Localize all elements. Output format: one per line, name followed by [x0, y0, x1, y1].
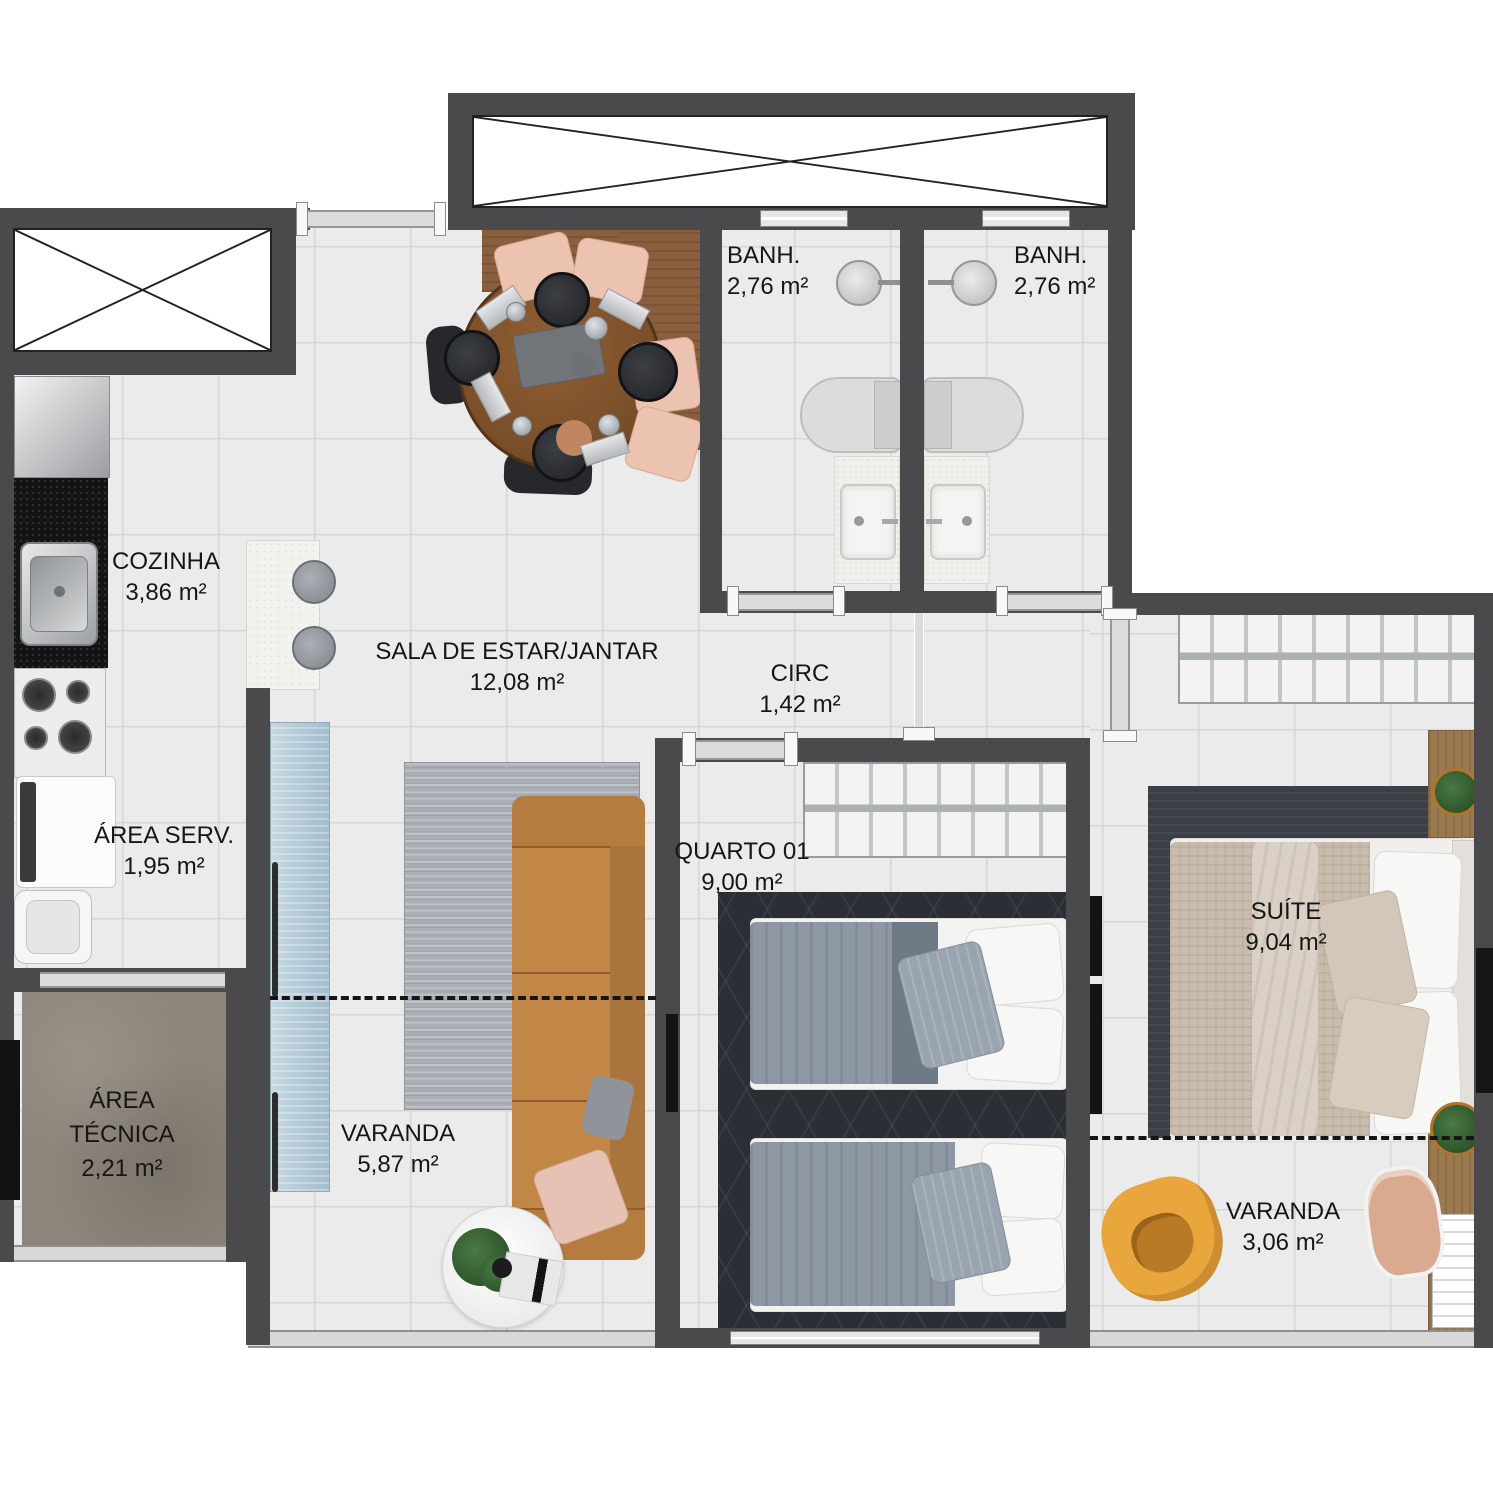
balcony-living-boundary — [270, 996, 656, 1000]
service-technical-opening — [40, 972, 225, 988]
stove-burner-1 — [22, 678, 56, 712]
suite-door — [1110, 617, 1130, 733]
outside-bottom-left — [0, 1262, 248, 1491]
shower-head-1 — [836, 260, 882, 306]
bedroom-door-jamb-right — [784, 732, 798, 766]
bedroom-window-bottom — [730, 1331, 1040, 1345]
room-name-line2: TÉCNICA — [69, 1118, 174, 1152]
balcony-suite-boundary — [1090, 1136, 1474, 1140]
label-suite: SUÍTE 9,04 m² — [1245, 896, 1326, 958]
glass-4 — [512, 416, 532, 436]
suite-wardrobe — [1178, 612, 1478, 704]
label-kitchen: COZINHA 3,86 m² — [112, 546, 220, 608]
sideboard-handle-1 — [272, 862, 278, 997]
bath1-door-jamb-right — [833, 586, 845, 616]
room-name: SUÍTE — [1245, 896, 1326, 927]
wall-top-left — [0, 208, 310, 230]
label-living-dining: SALA DE ESTAR/JANTAR 12,08 m² — [375, 636, 658, 698]
room-name: BANH. — [1014, 240, 1095, 271]
wall-technical-right — [226, 992, 248, 1262]
faucet-2-spout — [926, 519, 942, 524]
room-name-line1: ÁREA — [69, 1084, 174, 1118]
bedroom-door-jamb-left — [682, 732, 696, 766]
sofa-seat-1 — [512, 846, 610, 974]
suite-nightstand-plant — [1432, 768, 1480, 816]
room-name: BANH. — [727, 240, 808, 271]
circ-wall-jamb — [903, 727, 935, 741]
faucet-1 — [854, 516, 864, 526]
balcony-living-rail — [248, 1330, 660, 1348]
stove-burner-3 — [24, 726, 48, 750]
label-balcony-living: VARANDA 5,87 m² — [341, 1118, 455, 1180]
stove-burner-4 — [58, 720, 92, 754]
shower-arm-2 — [928, 280, 954, 285]
glass-3 — [598, 414, 620, 436]
room-area: 5,87 m² — [341, 1149, 455, 1180]
balcony-suite-rail — [1090, 1330, 1478, 1348]
suite-door-jamb-bottom — [1103, 730, 1137, 742]
wall-shaft-top-top — [448, 93, 1135, 115]
room-area: 9,04 m² — [1245, 927, 1326, 958]
label-bathroom-2: BANH. 2,76 m² — [1014, 240, 1095, 302]
toilet-1-tank — [874, 381, 902, 449]
sofa-armrest-top — [512, 796, 645, 846]
suite-window-right — [1476, 948, 1493, 1093]
room-area: 1,42 m² — [759, 689, 840, 720]
room-name: CIRC — [759, 658, 840, 689]
stove-burner-2 — [66, 680, 90, 704]
floor-plan: BANH. 2,76 m² BANH. 2,76 m² COZINHA 3,86… — [0, 0, 1493, 1491]
entry-door-jamb-right — [434, 202, 446, 236]
room-name: SALA DE ESTAR/JANTAR — [375, 636, 658, 667]
bathroom-1-door — [737, 593, 835, 611]
glass-1 — [584, 316, 608, 340]
room-name: VARANDA — [1226, 1196, 1340, 1227]
room-name: ÁREA SERV. — [94, 820, 234, 851]
label-bathroom-1: BANH. 2,76 m² — [727, 240, 808, 302]
room-area: 9,00 m² — [674, 867, 809, 898]
room-area: 2,76 m² — [1014, 271, 1095, 302]
wall-bath-left — [700, 228, 722, 613]
entry-door — [306, 210, 436, 228]
faucet-1-spout — [882, 519, 898, 524]
plate-top — [534, 272, 590, 328]
label-technical-area: ÁREA TÉCNICA 2,21 m² — [69, 1084, 174, 1186]
bathroom-2-window — [982, 210, 1070, 227]
bedroom-wardrobe — [803, 762, 1068, 858]
room-area: 2,76 m² — [727, 271, 808, 302]
island-stool-1 — [292, 560, 336, 604]
cup — [570, 352, 594, 376]
technical-threshold — [10, 1245, 248, 1262]
entry-door-jamb-left — [296, 202, 308, 236]
island-stool-2 — [292, 626, 336, 670]
wall-bedroom-right — [1066, 738, 1090, 1345]
bed1-duvet — [750, 922, 908, 1084]
room-area: 12,08 m² — [375, 667, 658, 698]
suite-door-jamb-top — [1103, 608, 1137, 620]
outside-top-right — [1132, 228, 1493, 593]
plate-right — [618, 342, 678, 402]
suite-bed-throw — [1252, 842, 1318, 1136]
refrigerator — [14, 376, 110, 478]
label-circulation: CIRC 1,42 m² — [759, 658, 840, 720]
suite-curtain-top — [1090, 896, 1102, 976]
plant-pot — [492, 1258, 512, 1278]
shower-head-2 — [951, 260, 997, 306]
wall-bath-middle — [900, 228, 924, 613]
wall-suite-top — [1132, 593, 1478, 615]
suite-curtain-bottom — [1090, 984, 1102, 1114]
toilet-2-tank — [924, 381, 952, 449]
faucet-2 — [962, 516, 972, 526]
sofa-back — [610, 846, 645, 1208]
room-area: 3,86 m² — [112, 577, 220, 608]
label-bedroom-1: QUARTO 01 9,00 m² — [674, 836, 809, 898]
shaft-box-left — [13, 228, 272, 352]
blue-sideboard — [270, 722, 330, 1192]
wall-shaft-left-bottom — [0, 352, 296, 375]
bath2-door-jamb-left — [996, 586, 1008, 616]
washing-machine-panel — [20, 782, 36, 882]
wall-bath-right — [1108, 228, 1132, 613]
sideboard-handle-2 — [272, 1092, 278, 1192]
room-name: QUARTO 01 — [674, 836, 809, 867]
wall-service-living — [246, 688, 270, 1345]
glass-2 — [506, 302, 526, 322]
kitchen-faucet — [54, 586, 65, 597]
label-service-area: ÁREA SERV. 1,95 m² — [94, 820, 234, 882]
room-area: 3,06 m² — [1226, 1227, 1340, 1258]
shaft-x-icon — [474, 117, 1106, 206]
bedroom-1-door — [694, 740, 786, 760]
shaft-x-icon — [15, 230, 270, 350]
bedroom-curtain — [666, 1014, 678, 1112]
shaft-box-top — [472, 115, 1108, 208]
bath1-door-jamb-left — [727, 586, 739, 616]
label-balcony-suite: VARANDA 3,06 m² — [1226, 1196, 1340, 1258]
bathroom-2-door — [1005, 593, 1103, 611]
technical-door-black — [0, 1040, 20, 1200]
room-name: VARANDA — [341, 1118, 455, 1149]
room-name: COZINHA — [112, 546, 220, 577]
room-area: 2,21 m² — [69, 1152, 174, 1186]
bathroom-1-window — [760, 210, 848, 227]
room-area: 1,95 m² — [94, 851, 234, 882]
laundry-tub-bowl — [26, 900, 80, 954]
